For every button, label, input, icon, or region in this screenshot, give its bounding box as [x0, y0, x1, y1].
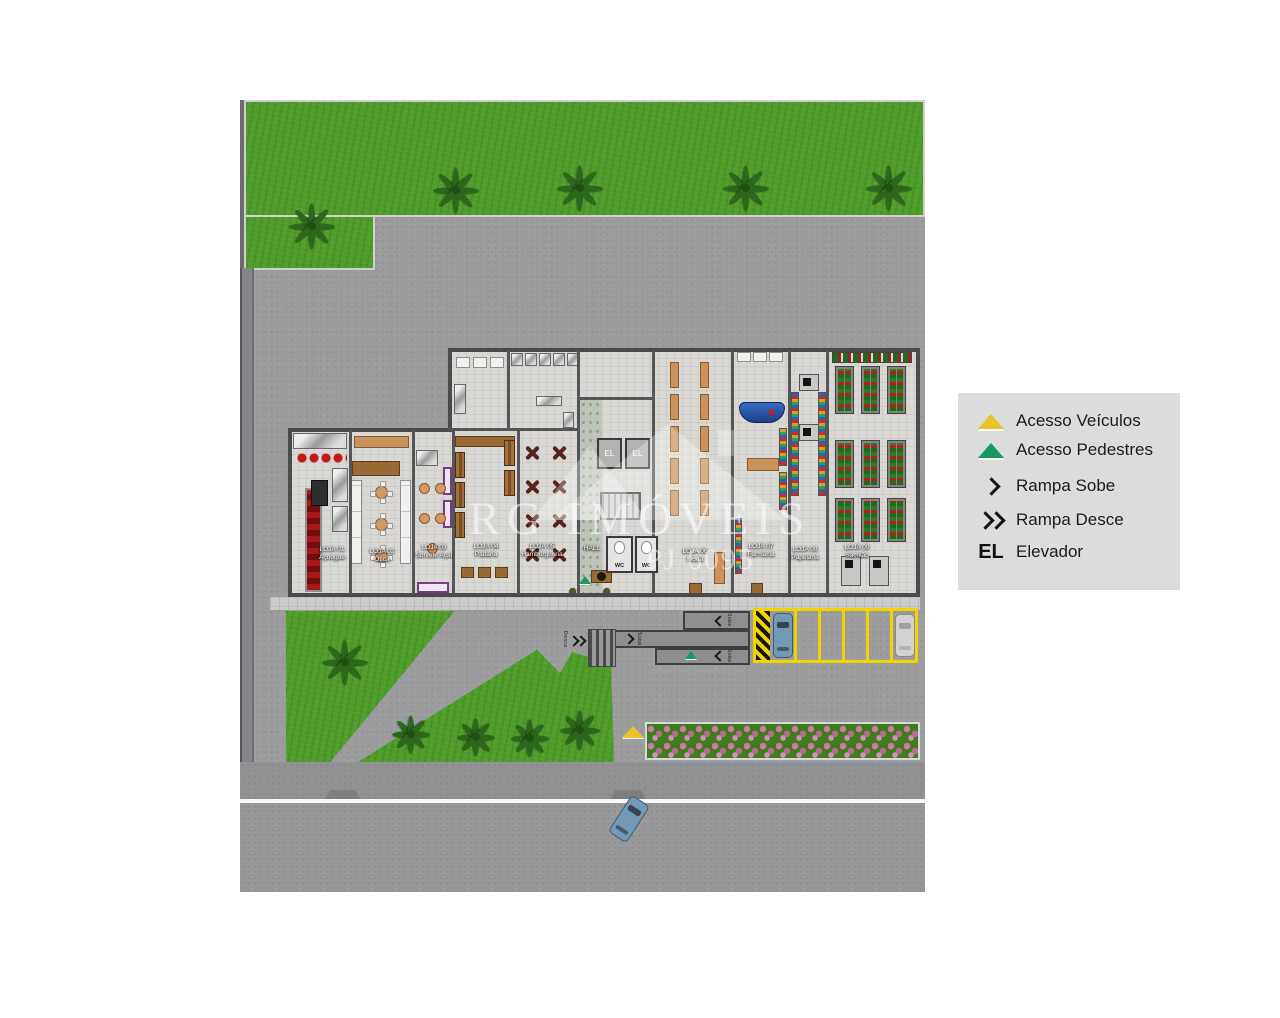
product-rack	[779, 472, 787, 510]
x-table	[524, 478, 541, 495]
palm-tree-icon	[392, 715, 430, 753]
legend-row-elevador: EL Elevador	[974, 541, 1180, 563]
pharmacy-shelf	[769, 352, 783, 362]
shop-label-loja-02: LOJA 02Ótica	[355, 548, 409, 564]
fridge	[332, 506, 348, 532]
parking-divider	[818, 611, 821, 660]
ramp-down-text: Desce	[562, 631, 567, 648]
partition-wall	[412, 430, 415, 594]
vehicle-access-triangle-icon	[974, 414, 1008, 429]
hall-corridor	[580, 400, 602, 594]
parked-car-blue	[773, 613, 793, 658]
kitchen-fridge	[563, 412, 574, 428]
bread-rack	[455, 482, 465, 508]
ramp-up-text: Sobe	[726, 649, 731, 663]
kitchen-counter	[539, 353, 551, 366]
legend-label: Acesso Veículos	[1016, 411, 1141, 431]
pharmacy-desk	[747, 458, 779, 471]
service-desk	[352, 461, 400, 476]
palm-tree-icon	[557, 165, 603, 211]
shop-label-loja-03: LOJA 03Sorvete Açaí	[414, 544, 454, 560]
elevator-shaft: EL	[625, 438, 650, 469]
clothing-rack	[670, 458, 679, 484]
x-table	[551, 444, 568, 461]
shop-label-loja-09: LOJA 09Sacolão	[829, 544, 885, 560]
produce-rack	[861, 440, 880, 488]
site-plan-canvas: EL EL WC WC	[0, 0, 1280, 1018]
partition-wall	[349, 430, 352, 594]
pedestrian-access-triangle-icon	[685, 651, 697, 659]
shop-label-loja-08: LOJA 08Papelaria	[782, 546, 828, 562]
palm-tree-icon	[511, 719, 549, 757]
legend-label: Rampa Sobe	[1016, 476, 1115, 496]
palm-tree-icon	[457, 718, 495, 756]
legend-label: Acesso Pedestres	[1016, 440, 1153, 460]
shop-label-loja-07: LOJA 07Farmácia	[735, 543, 787, 559]
elevator-label: EL	[604, 449, 614, 458]
cafe-table	[495, 567, 508, 578]
ramp-down-chevron-icon	[974, 514, 1008, 527]
flower-hedge	[645, 722, 920, 760]
cafe-table	[461, 567, 474, 578]
acai-shelf	[417, 582, 449, 593]
parked-car-silver	[895, 614, 915, 657]
wc-room: WC	[635, 536, 658, 573]
legend-row-acesso-veiculos: Acesso Veículos	[974, 410, 1180, 432]
round-table	[375, 486, 388, 499]
partition-wall	[448, 428, 580, 431]
partition-wall	[577, 397, 655, 400]
computer-desk	[799, 424, 819, 441]
ramp-lane-middle	[594, 630, 750, 648]
display-counter	[354, 436, 409, 448]
legend-row-rampa-sobe: Rampa Sobe	[974, 475, 1180, 497]
produce-rack	[861, 366, 880, 414]
shop-label-loja-01: LOJA 01Açougue	[304, 546, 360, 562]
palm-tree-icon	[723, 165, 769, 211]
clothing-rack	[700, 394, 709, 420]
wc-label: WC	[642, 563, 651, 569]
no-parking-hatch	[756, 611, 770, 660]
bread-rack	[504, 470, 515, 496]
building-wall	[916, 348, 920, 597]
parking-area	[753, 608, 918, 663]
clothing-rack	[670, 362, 679, 388]
pedestrian-access-triangle-icon	[974, 443, 1008, 458]
storage-rack	[454, 384, 466, 414]
clothing-rack	[670, 426, 679, 452]
palm-tree-icon	[289, 203, 335, 249]
parking-divider	[890, 611, 893, 660]
building-wall	[448, 348, 920, 352]
partition-wall	[507, 350, 510, 430]
product-rack	[779, 428, 787, 466]
palm-tree-icon	[322, 639, 368, 685]
produce-rack	[835, 440, 854, 488]
fridge	[332, 468, 348, 502]
butcher-counter	[293, 433, 347, 449]
cafe-table	[478, 567, 491, 578]
legend-panel: Acesso Veículos Acesso Pedestres Rampa S…	[958, 393, 1180, 590]
ramp-up-text: Sobe	[636, 632, 641, 646]
clothing-rack	[670, 490, 679, 516]
clothing-rack	[700, 426, 709, 452]
produce-rack	[887, 440, 906, 488]
palm-tree-icon	[866, 165, 912, 211]
ramp-entrance-grating	[588, 629, 616, 667]
left-curb-line	[240, 100, 244, 268]
ramp-up-text: Sobe	[726, 613, 731, 627]
x-table	[524, 444, 541, 461]
kitchen-counter	[525, 353, 537, 366]
freezer	[416, 450, 438, 466]
kitchen-counter	[553, 353, 565, 366]
staircase	[600, 492, 641, 520]
round-table	[435, 483, 446, 494]
round-table	[419, 483, 430, 494]
hall-label: HALL	[578, 545, 606, 553]
parking-divider	[866, 611, 869, 660]
storage-shelf	[473, 357, 487, 368]
meat-hooks	[297, 452, 347, 465]
partition-wall	[517, 430, 520, 594]
clothing-rack	[700, 362, 709, 388]
partition-wall	[452, 430, 455, 594]
shop-label-loja-06: LOJA 06Moda	[667, 548, 723, 564]
kitchen-island	[536, 396, 562, 406]
produce-bin-row	[832, 352, 912, 363]
wc-label: WC	[615, 563, 624, 569]
building-wall	[288, 428, 455, 432]
x-table	[524, 512, 541, 529]
bread-rack	[504, 440, 515, 466]
ramp-up-chevron-icon	[974, 480, 1008, 493]
elevator-shaft: EL	[597, 438, 622, 469]
round-table	[419, 513, 430, 524]
legend-label: Elevador	[1016, 542, 1083, 562]
produce-rack	[835, 498, 854, 542]
partition-wall	[577, 350, 580, 594]
storage-shelf	[456, 357, 470, 368]
office-chair	[597, 572, 606, 581]
pharmacy-counter	[739, 402, 785, 423]
produce-rack	[861, 498, 880, 542]
checkout-counter	[841, 556, 861, 586]
computer-desk	[799, 374, 819, 391]
pedestrian-access-triangle-icon	[579, 576, 591, 584]
clothing-rack	[700, 458, 709, 484]
partition-wall	[731, 350, 734, 594]
round-table	[375, 518, 388, 531]
palm-tree-icon	[433, 167, 479, 213]
stationery-rack	[818, 392, 826, 496]
legend-row-acesso-pedestres: Acesso Pedestres	[974, 439, 1180, 461]
elevator-label: EL	[632, 449, 642, 458]
produce-rack	[887, 366, 906, 414]
left-side-road	[240, 268, 254, 762]
pharmacy-shelf	[753, 352, 767, 362]
checkout-counter	[869, 556, 889, 586]
x-table	[551, 478, 568, 495]
shop-label-loja-04: LOJA 04Padaria	[459, 543, 513, 559]
stationery-rack	[791, 392, 799, 496]
clothing-rack	[670, 394, 679, 420]
storage-shelf	[490, 357, 504, 368]
produce-rack	[835, 366, 854, 414]
clothing-rack	[700, 490, 709, 516]
parking-divider	[842, 611, 845, 660]
round-table	[435, 513, 446, 524]
produce-rack	[887, 498, 906, 542]
kitchen-counter	[511, 353, 523, 366]
parking-divider	[794, 611, 797, 660]
bread-rack	[455, 512, 465, 538]
building-wall	[448, 348, 452, 432]
legend-row-rampa-desce: Rampa Desce	[974, 509, 1180, 531]
x-table	[551, 512, 568, 529]
legend-label: Rampa Desce	[1016, 510, 1124, 530]
ramp-lane-lower	[655, 648, 750, 665]
cash-register	[311, 480, 328, 506]
street-edge-line	[240, 799, 925, 803]
elevator-symbol: EL	[974, 541, 1008, 564]
bread-rack	[455, 452, 465, 478]
wc-room: WC	[606, 536, 633, 573]
street-road	[240, 803, 925, 892]
shop-label-loja-05: LOJA 05Hamburgueria	[514, 543, 570, 559]
palm-tree-icon	[560, 710, 600, 750]
vehicle-access-triangle-icon	[622, 726, 644, 738]
pharmacy-shelf	[737, 352, 751, 362]
building-wall	[288, 428, 292, 597]
